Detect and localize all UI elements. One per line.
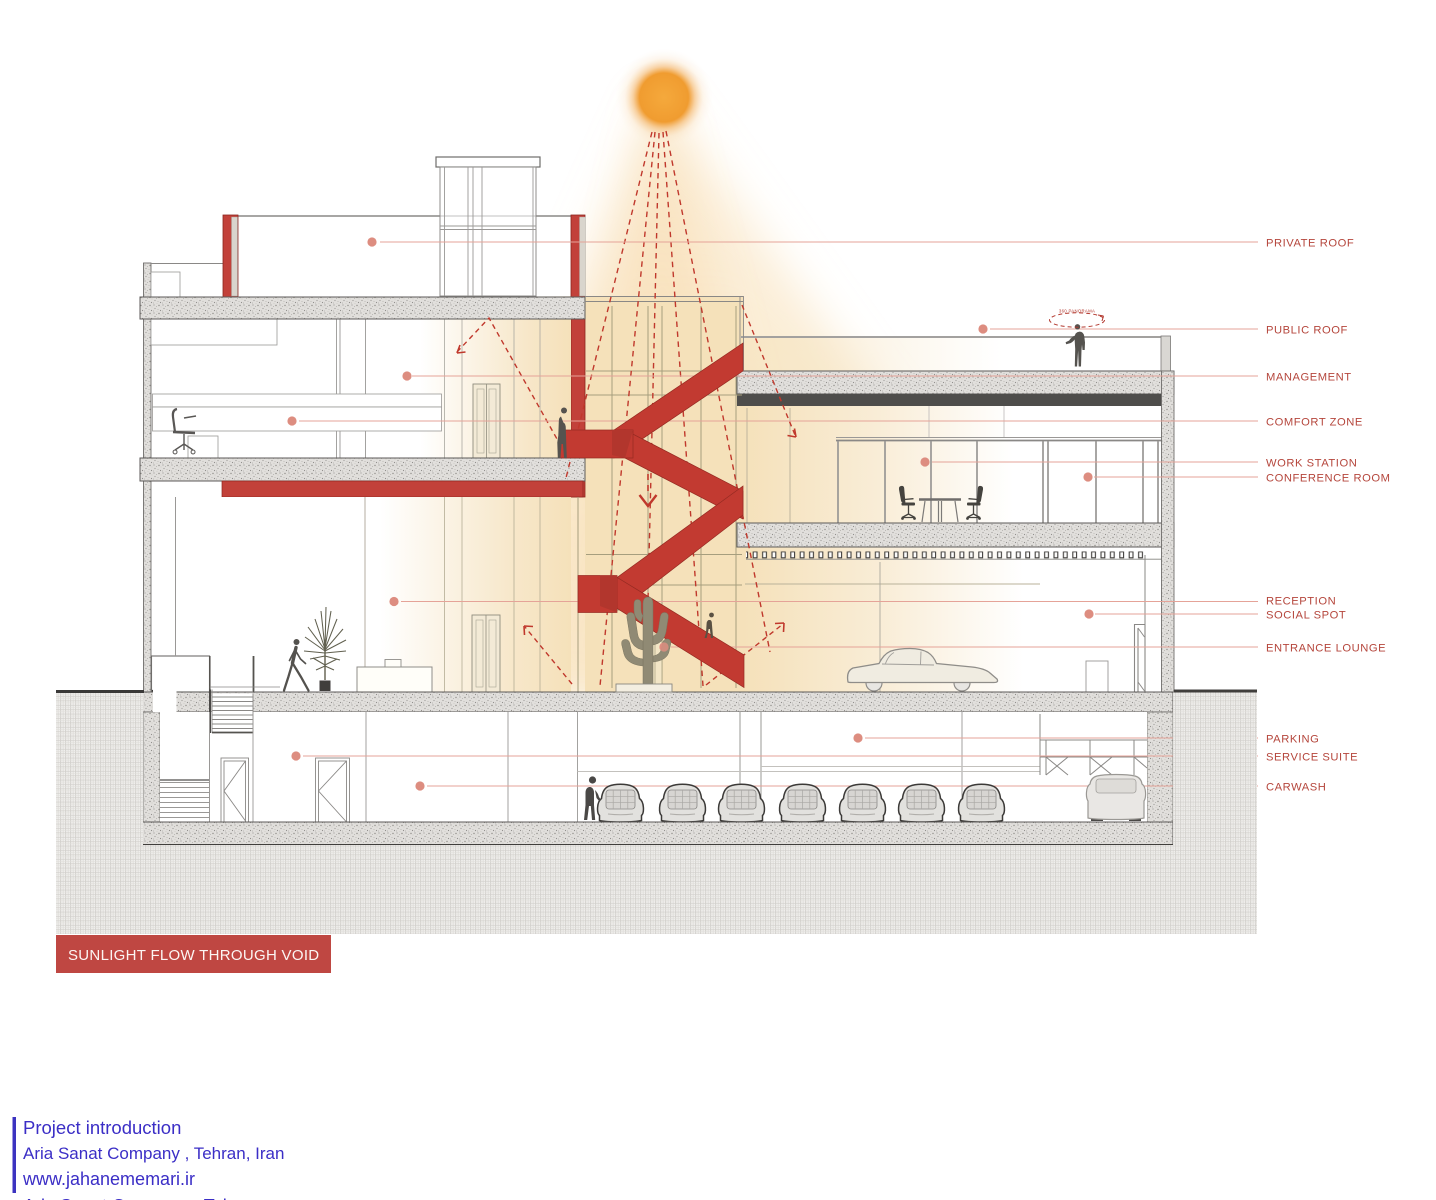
svg-text:ENTRANCE LOUNGE: ENTRANCE LOUNGE bbox=[1266, 643, 1386, 655]
svg-text:RECEPTION: RECEPTION bbox=[1266, 596, 1336, 608]
svg-text:WORK STATION: WORK STATION bbox=[1266, 458, 1357, 470]
svg-text:Aria Sanat Company , Tehran, I: Aria Sanat Company , Tehran, Iran bbox=[23, 1144, 284, 1163]
svg-text:COMFORT ZONE: COMFORT ZONE bbox=[1266, 417, 1363, 429]
svg-text:SERVICE SUITE: SERVICE SUITE bbox=[1266, 752, 1358, 764]
svg-text:CARWASH: CARWASH bbox=[1266, 782, 1326, 794]
svg-text:Project introduction: Project introduction bbox=[23, 1117, 181, 1138]
svg-text:CONFERENCE ROOM: CONFERENCE ROOM bbox=[1266, 473, 1390, 485]
svg-text:PARKING: PARKING bbox=[1266, 734, 1319, 746]
svg-text:SUNLIGHT FLOW THROUGH VOID: SUNLIGHT FLOW THROUGH VOID bbox=[68, 947, 319, 964]
svg-text:MANAGEMENT: MANAGEMENT bbox=[1266, 372, 1352, 384]
svg-text:Aria Sanat Company , Tehran: Aria Sanat Company , Tehran bbox=[23, 1196, 259, 1200]
svg-text:www.jahanememari.ir: www.jahanememari.ir bbox=[22, 1169, 195, 1189]
svg-text:PRIVATE ROOF: PRIVATE ROOF bbox=[1266, 238, 1354, 250]
svg-text:SOCIAL SPOT: SOCIAL SPOT bbox=[1266, 610, 1346, 622]
svg-text:PUBLIC ROOF: PUBLIC ROOF bbox=[1266, 325, 1348, 337]
svg-text:360 PANORAMA: 360 PANORAMA bbox=[1059, 309, 1095, 314]
